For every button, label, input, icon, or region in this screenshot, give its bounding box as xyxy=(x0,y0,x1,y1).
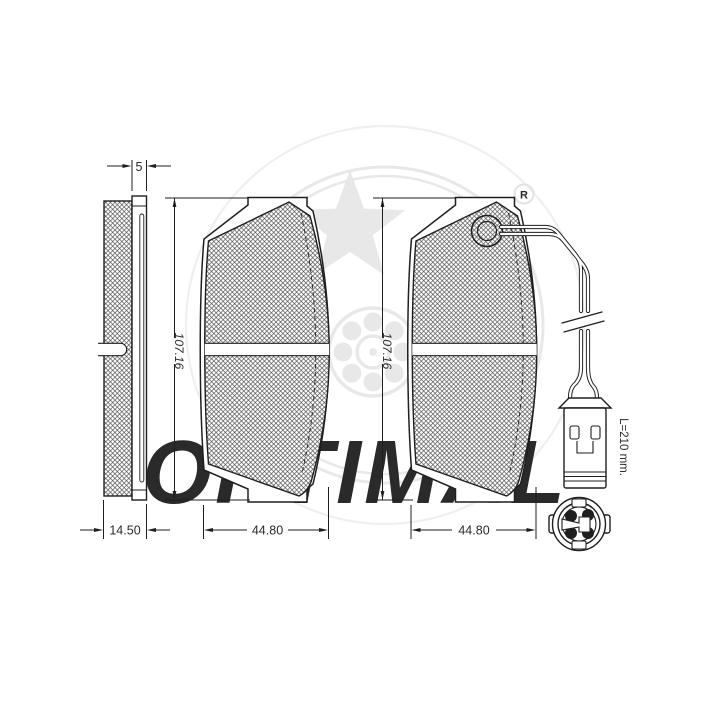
brake-pad-catalog-image: R OPTIMAL 5 14.50 xyxy=(0,0,720,720)
pad-side-view xyxy=(99,196,147,500)
dim-plate-thickness: 5 xyxy=(107,160,171,191)
pad-height-label-left: 107.16 xyxy=(172,333,186,370)
pad-height-label-right: 107.16 xyxy=(380,333,394,370)
friction-groove xyxy=(404,343,552,355)
watermark-registered-mark: R xyxy=(515,185,534,204)
watermark-ball-bearing-icon xyxy=(329,308,417,396)
registered-letter: R xyxy=(520,190,528,202)
technical-drawing-canvas: R OPTIMAL 5 14.50 xyxy=(0,0,720,720)
side-view-groove xyxy=(99,343,127,355)
wire-length-label: L=210 mm. xyxy=(617,418,629,476)
side-view-backing-plate xyxy=(132,196,147,500)
friction-groove xyxy=(196,343,344,355)
pad-width-label-left: 44.80 xyxy=(252,524,283,538)
connector-cap xyxy=(559,398,611,408)
plate-thickness-label: 5 xyxy=(136,160,143,174)
pad-width-label-right: 44.80 xyxy=(458,524,489,538)
pad-thickness-label: 14.50 xyxy=(109,524,140,538)
sensor-connector xyxy=(559,398,611,488)
